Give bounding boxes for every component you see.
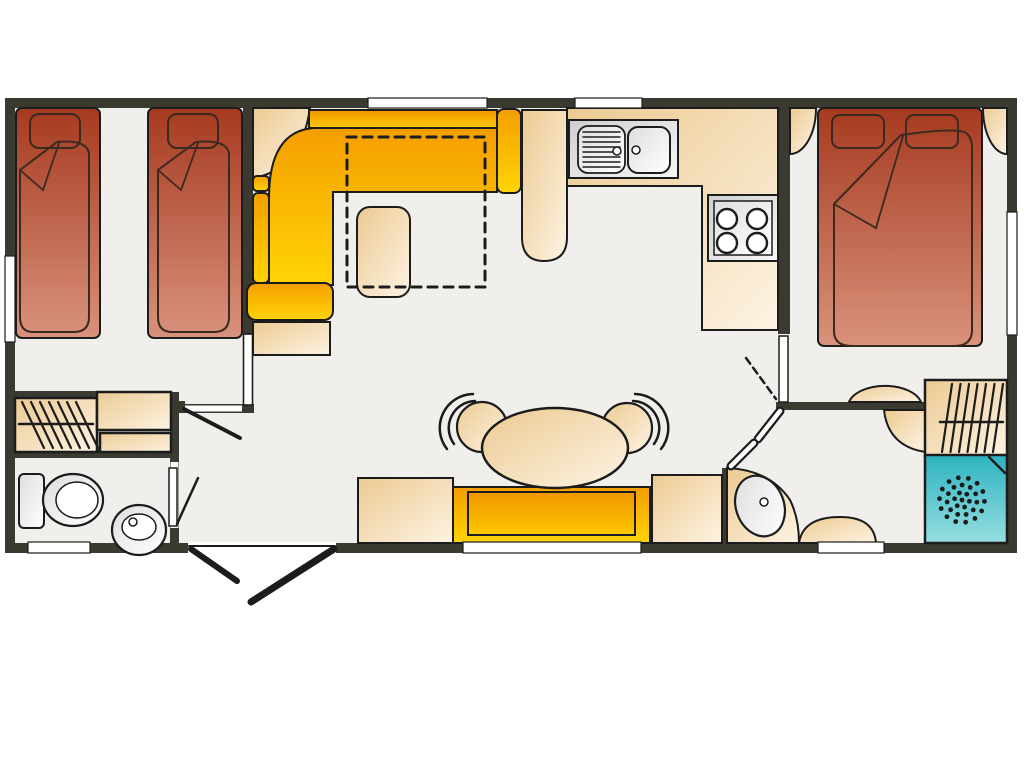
shower-drain-dots-dot xyxy=(964,492,969,497)
shower-drain-dots-dot xyxy=(945,500,950,505)
entrance-door-right-leaf xyxy=(251,549,334,602)
sofa-end-table xyxy=(253,322,330,355)
dining-cabinet-right xyxy=(652,475,722,543)
shower-drain-dots-dot xyxy=(979,509,984,514)
sink-drainer-tap xyxy=(613,147,621,155)
dining-cabinet-left xyxy=(358,478,453,543)
shower-drain-dots-dot xyxy=(953,519,958,524)
floor-plan-canvas xyxy=(0,0,1024,768)
dining-table xyxy=(482,408,628,488)
bathroom-door-leaf xyxy=(169,468,177,526)
wall-kitchen-bedroom xyxy=(778,98,790,334)
shower-drain-dots-dot xyxy=(974,500,979,505)
wall-ensuite-top xyxy=(776,402,926,410)
sink-basin-tap xyxy=(632,146,640,154)
vanity-tap xyxy=(760,498,768,506)
shower-drain-dots-dot xyxy=(973,516,978,521)
entrance-door-left-leaf xyxy=(191,549,237,581)
sofa-back-left-1 xyxy=(253,176,269,191)
hob-burner-2 xyxy=(747,209,767,229)
coffee-stool xyxy=(357,207,410,297)
hob-burner-4 xyxy=(747,233,767,253)
window-bottom-bathroom xyxy=(28,542,90,553)
sofa-back-left-2 xyxy=(253,193,269,283)
sofa-bottom-arm xyxy=(247,283,333,320)
shower-drain-dots-dot xyxy=(966,476,971,481)
bathroom-cabinet-lower xyxy=(100,433,171,452)
bathroom-cabinet-upper xyxy=(97,392,171,430)
shower-drain-dots-dot xyxy=(948,507,953,512)
shower-drain-dots-dot xyxy=(952,496,957,501)
shower-drain-dots-dot xyxy=(955,512,960,517)
dining-bench-cushion xyxy=(468,492,635,535)
twin-door-hinge xyxy=(175,401,185,413)
twin-pocket-door xyxy=(244,334,253,405)
shower-drain-dots-dot xyxy=(975,481,980,486)
shower-drain-dots-dot xyxy=(956,475,961,480)
window-top-living xyxy=(368,98,487,108)
toilet-cistern xyxy=(19,474,44,528)
toilet-bowl-inner xyxy=(56,482,98,518)
window-left-twin-bedroom xyxy=(5,256,15,342)
basin-tap xyxy=(129,518,137,526)
shower-drain-dots-dot xyxy=(973,491,978,496)
shower-drain-dots-dot xyxy=(955,503,960,508)
basin-bowl xyxy=(122,514,156,540)
shower-drain-dots-dot xyxy=(971,507,976,512)
entrance-opening xyxy=(188,542,336,553)
shower-drain-dots-dot xyxy=(937,496,942,501)
sofa-right-arm xyxy=(497,109,521,193)
shower-drain-dots-dot xyxy=(960,483,965,488)
window-top-kitchen xyxy=(575,98,642,108)
hob-burner-3 xyxy=(717,233,737,253)
bedroom-door-leaf xyxy=(779,336,788,402)
shower-drain-dots-dot xyxy=(980,489,985,494)
shower-drain-dots-dot xyxy=(952,485,957,490)
shower-drain-dots-dot xyxy=(967,499,972,504)
shower-drain-dots-dot xyxy=(982,499,987,504)
shower-drain-dots-dot xyxy=(968,485,973,490)
floor-plan xyxy=(0,0,1024,768)
shower-drain-dots-dot xyxy=(957,491,962,496)
twin-door-opening xyxy=(184,406,242,412)
breakfast-bar xyxy=(522,110,567,261)
shower-drain-dots-dot xyxy=(962,505,967,510)
shower-drain-dots-dot xyxy=(940,487,945,492)
sofa-back-top xyxy=(309,110,497,128)
shower-drain-dots-dot xyxy=(963,520,968,525)
shower-drain-dots-dot xyxy=(947,479,952,484)
window-right-double-bedroom xyxy=(1007,212,1017,335)
shower-drain-dots-dot xyxy=(960,498,965,503)
hob-burner-1 xyxy=(717,209,737,229)
shower-drain-dots-dot xyxy=(946,491,951,496)
shower-drain-dots-dot xyxy=(939,506,944,511)
window-bottom-dining xyxy=(463,542,641,553)
shower-drain-dots-dot xyxy=(945,514,950,519)
shower-drain-dots-dot xyxy=(964,512,969,517)
window-bottom-ensuite xyxy=(818,542,884,553)
